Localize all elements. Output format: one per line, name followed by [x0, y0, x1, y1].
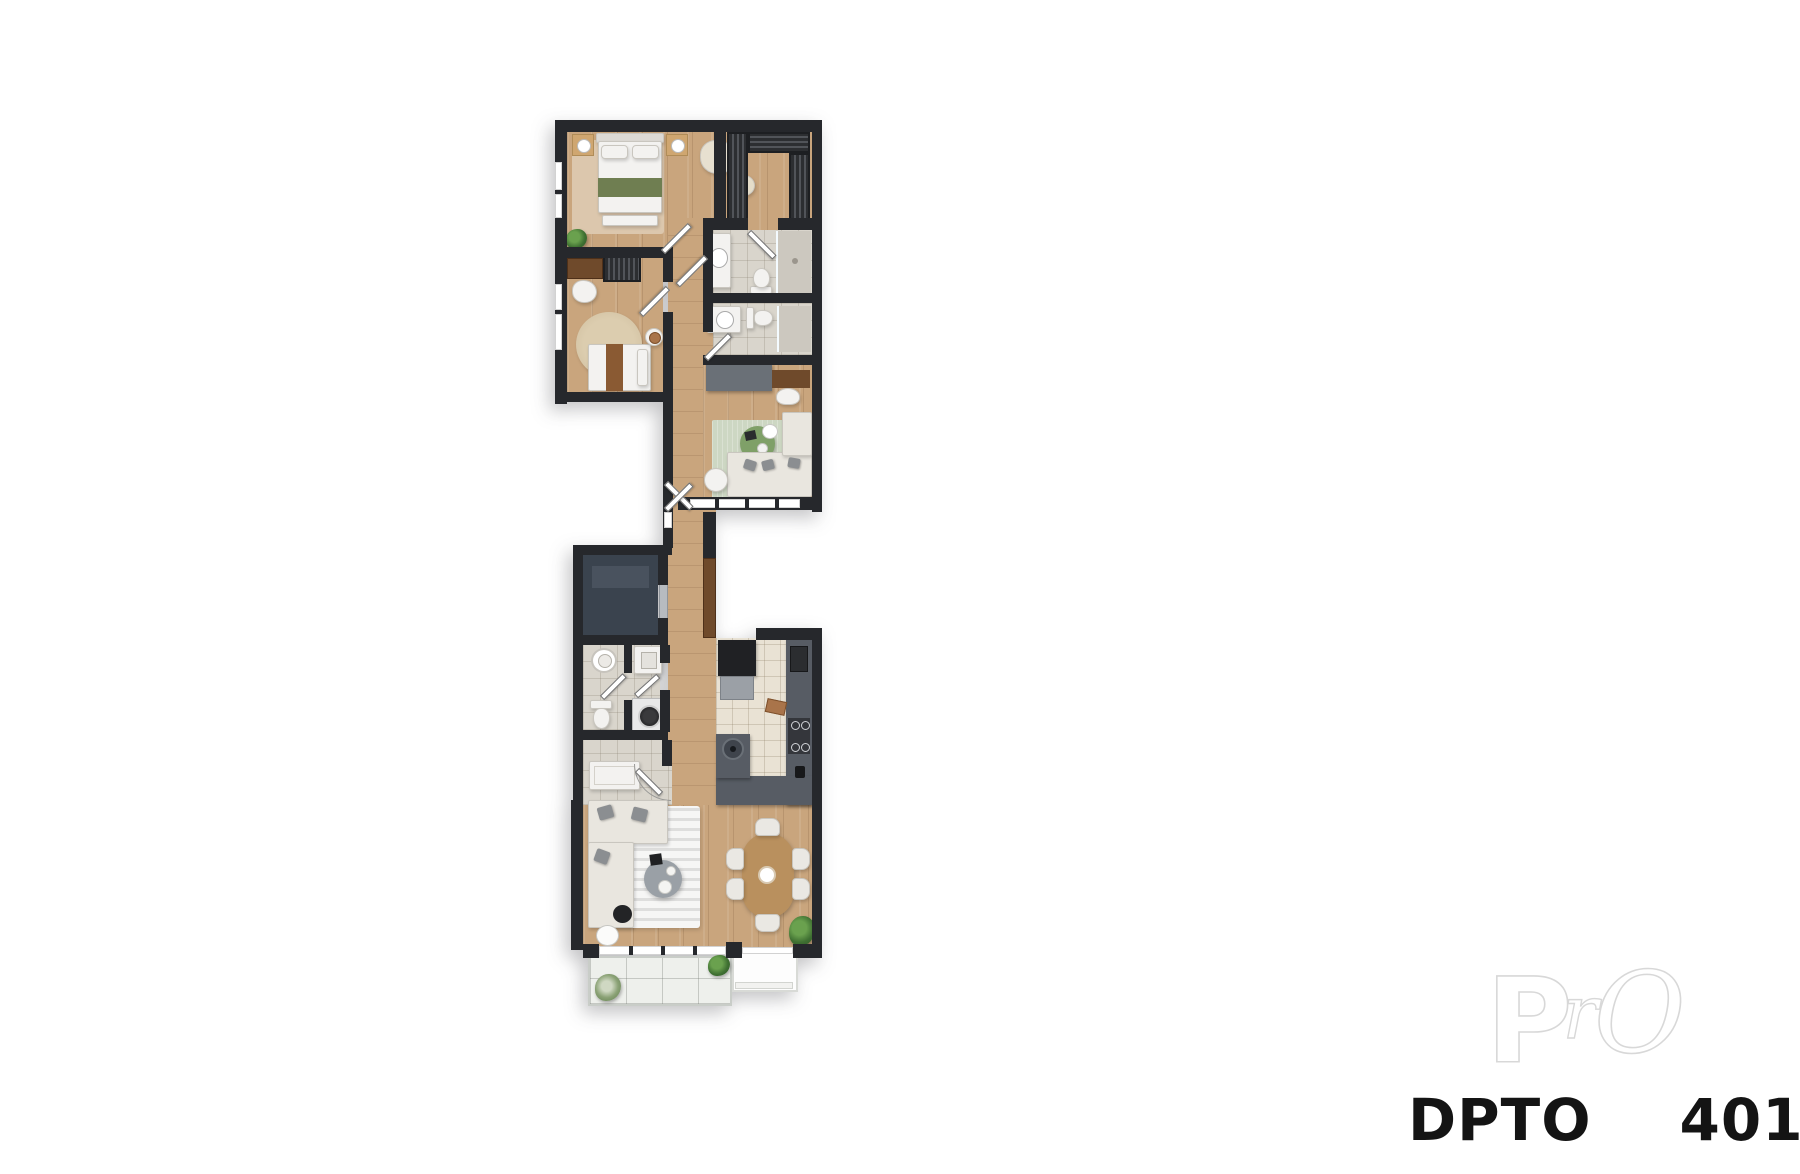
dining-chair	[755, 818, 780, 836]
closet-wardrobe-top	[748, 132, 810, 153]
bedroom2-bed-runner	[606, 344, 623, 391]
wall-segment	[583, 730, 668, 740]
window-post	[715, 499, 719, 508]
wall-segment	[573, 545, 672, 555]
wall-segment	[703, 355, 822, 365]
bath1-shower-glass	[776, 231, 778, 294]
bath3-partition	[624, 700, 632, 731]
living-ottoman	[613, 905, 632, 923]
terrace-railing	[735, 982, 793, 989]
wall-segment	[662, 740, 672, 766]
kitchen-sink-drain	[730, 746, 736, 752]
dining-chair	[726, 848, 744, 870]
wall-segment	[555, 247, 665, 258]
coffee-table-plate	[666, 866, 676, 876]
study-sofa-back	[782, 412, 812, 456]
bedroom2-basket	[649, 332, 661, 344]
wall-segment	[573, 745, 583, 805]
bedroom2-shelf	[567, 258, 603, 279]
bath3-cabinet-basin	[641, 652, 657, 669]
master-bed-bench	[602, 215, 658, 226]
wall-segment	[726, 942, 742, 958]
oven	[790, 646, 808, 672]
dining-window-band	[742, 947, 793, 954]
master-bed-pillow-right	[632, 145, 659, 159]
window	[555, 314, 562, 350]
lamp-right	[671, 139, 685, 153]
fridge-front	[720, 676, 754, 700]
wall-segment	[573, 545, 583, 745]
fridge	[718, 640, 756, 676]
elevator-car-line	[592, 566, 649, 588]
watermark-letter-r: r	[1562, 976, 1597, 1050]
bath1-toilet-bowl	[753, 268, 770, 288]
bath3-partition	[624, 645, 632, 673]
study-desk	[706, 364, 772, 391]
kitchen-tall-cabinet	[703, 558, 716, 638]
study-chair	[776, 388, 800, 405]
stove-burner	[791, 743, 800, 752]
unit-label: DPTO 401	[1408, 1086, 1800, 1154]
closet-wardrobe-right	[789, 153, 810, 220]
master-bed-pillow-left	[601, 145, 628, 159]
wall-segment	[660, 690, 670, 732]
stove-burner	[791, 721, 800, 730]
unit-label-number: 401	[1680, 1086, 1800, 1154]
wall-segment	[583, 635, 668, 645]
bath3-sink-basin	[598, 654, 612, 668]
bath2-basin	[716, 311, 734, 329]
coffee-table-plate	[658, 880, 672, 894]
bath2-toilet-tank	[746, 307, 754, 329]
study-tray	[762, 424, 778, 439]
wall-segment	[714, 126, 726, 228]
wall-segment	[663, 312, 673, 404]
kitchen-faucet	[795, 766, 805, 778]
entry-console-lines	[594, 766, 635, 785]
dining-chair	[792, 848, 810, 870]
master-bed-blanket	[598, 178, 662, 197]
bedroom2-wardrobe	[603, 256, 641, 282]
bath2-shower	[779, 306, 811, 352]
washing-machine-door	[638, 705, 661, 728]
bath1-drain	[792, 258, 798, 264]
wall-segment	[555, 120, 822, 132]
watermark-letter-o: O	[1594, 958, 1686, 1070]
dining-centerpiece	[758, 866, 776, 884]
study-wall-shelf	[772, 370, 810, 388]
dining-chair	[792, 878, 810, 900]
window-post	[775, 499, 779, 508]
living-side-table	[596, 925, 619, 946]
window	[555, 284, 562, 310]
kitchen-counter-bottom	[716, 776, 812, 805]
wall-segment	[703, 218, 713, 332]
bath3-toilet-bowl	[593, 708, 610, 729]
wall-segment	[703, 293, 822, 303]
window-post	[629, 946, 633, 955]
study-sofa-pillow	[787, 457, 801, 469]
wall-segment	[571, 800, 583, 950]
wall-segment	[703, 512, 716, 558]
floor-plan-page: P r O DPTO 401	[0, 0, 1800, 1174]
wall-segment	[660, 645, 670, 663]
closet-wardrobe-left	[727, 132, 748, 220]
window	[555, 194, 562, 218]
watermark-letter-p: P	[1486, 962, 1572, 1080]
wall-segment	[812, 628, 822, 958]
window-post	[661, 946, 665, 955]
wall-segment	[793, 944, 822, 958]
wall-segment	[555, 392, 673, 402]
dining-chair	[755, 914, 780, 932]
bath2-toilet-bowl	[754, 310, 773, 326]
dining-chair	[726, 878, 744, 900]
window-post	[693, 946, 697, 955]
bedroom2-pillow	[637, 349, 648, 386]
window-post	[745, 499, 749, 508]
elevator-door	[659, 584, 668, 620]
coffee-table-tray	[649, 853, 662, 866]
wall-segment	[583, 944, 599, 958]
lamp-left	[577, 139, 591, 153]
stove-burner	[801, 743, 810, 752]
unit-label-dpto: DPTO	[1408, 1086, 1592, 1154]
window	[664, 512, 672, 528]
wall-segment	[812, 120, 822, 512]
bedroom2-chair	[572, 280, 597, 303]
bath2-shower-glass	[777, 306, 779, 352]
window	[555, 162, 562, 190]
watermark-logo: P r O	[1486, 962, 1686, 1080]
stove-burner	[801, 721, 810, 730]
study-side-table	[704, 468, 728, 492]
wall-segment	[658, 555, 668, 585]
